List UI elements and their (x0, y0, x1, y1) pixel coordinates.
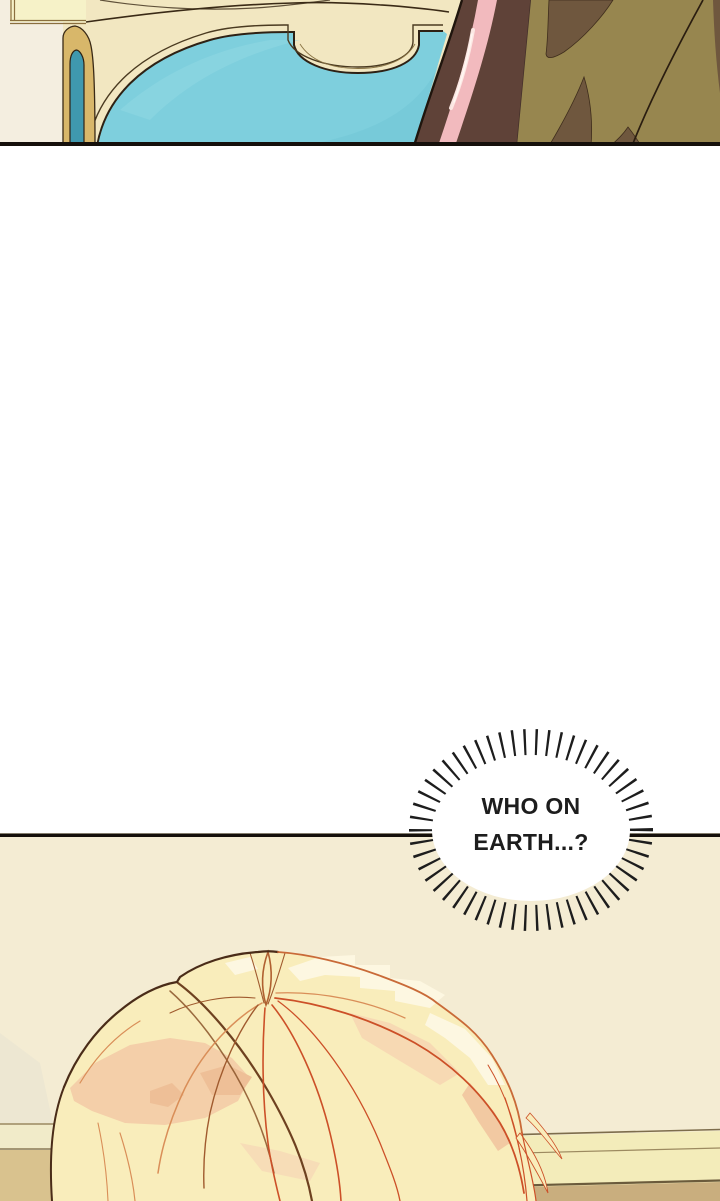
webtoon-page: WHO ON EARTH...? (0, 0, 720, 1201)
inset-panel (10, 0, 86, 22)
panel-top-artwork (0, 0, 720, 146)
speech-bubble: WHO ON EARTH...? (405, 724, 657, 932)
arched-niche (63, 26, 95, 146)
panel-top (0, 0, 720, 146)
speech-bubble-text: WHO ON EARTH...? (405, 720, 657, 928)
speech-line-2: EARTH...? (473, 824, 588, 860)
khaki-figure (517, 0, 720, 146)
panel-border-bottom (0, 142, 720, 146)
speech-line-1: WHO ON (482, 788, 581, 824)
niche-window-teal (70, 50, 84, 146)
